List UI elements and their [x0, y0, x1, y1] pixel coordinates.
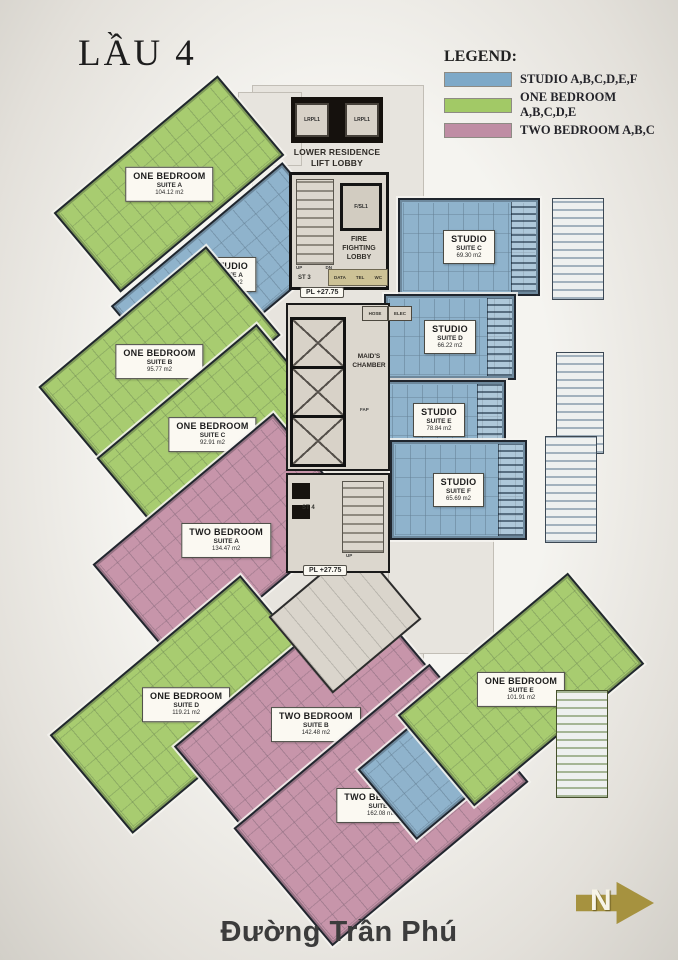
- lower-residence-lift-lobby-label: LOWER RESIDENCE LIFT LOBBY: [277, 147, 397, 169]
- elec-room: ELEC: [388, 306, 412, 321]
- studio-color-swatch: [444, 72, 512, 87]
- level-label-upper: PL +27.75: [300, 287, 344, 298]
- north-compass: N: [576, 872, 656, 932]
- residence-lift-bank: LRPL1 LRPL1: [291, 97, 383, 143]
- lift-lrpl1: LRPL1: [345, 103, 379, 137]
- unit-label: STUDIO SUITE F 65.69 m2: [433, 473, 485, 508]
- balcony-strip: [545, 436, 597, 543]
- unit-label: STUDIO SUITE E 78.84 m2: [413, 403, 465, 438]
- level-label-lower: PL +27.75: [303, 565, 347, 576]
- north-arrow-icon: [576, 880, 654, 926]
- stair-3-hatch: [296, 179, 334, 265]
- duct-box: [292, 483, 310, 499]
- unit-label: STUDIO SUITE C 69.30 m2: [443, 230, 495, 265]
- balcony-strip: [556, 690, 608, 798]
- hose-room: HOSE: [362, 306, 388, 321]
- balcony-hatch: [487, 298, 512, 376]
- page-title: LẦU 4: [78, 32, 197, 75]
- stair-4-hatch: [342, 481, 384, 553]
- unit-studio-suite-f: STUDIO SUITE F 65.69 m2: [390, 440, 527, 540]
- fap-label: FAP: [360, 407, 369, 412]
- data-room-label: DATA: [334, 275, 346, 280]
- legend-row-two-bedroom: TWO BEDROOM A,B,C: [444, 123, 674, 138]
- legend-label-one-bedroom: ONE BEDROOM A,B,C,D,E: [520, 90, 674, 120]
- balcony-hatch: [511, 202, 536, 292]
- wc-room-label: WC: [374, 275, 382, 280]
- legend: LEGEND: STUDIO A,B,C,D,E,F ONE BEDROOM A…: [444, 48, 674, 141]
- legend-row-one-bedroom: ONE BEDROOM A,B,C,D,E: [444, 90, 674, 120]
- legend-row-studio: STUDIO A,B,C,D,E,F: [444, 72, 674, 87]
- lift-shaft-block: MAID'S CHAMBER FAP: [286, 303, 390, 471]
- unit-label: ONE BEDROOM SUITE B 95.77 m2: [115, 344, 203, 379]
- legend-heading: LEGEND:: [444, 48, 674, 66]
- unit-label: ONE BEDROOM SUITE E 101.91 m2: [477, 672, 565, 707]
- lift-shaft-cell: [293, 320, 343, 366]
- lift-lrpl1: LRPL1: [295, 103, 329, 137]
- floor-plan-page: LẦU 4 LEGEND: STUDIO A,B,C,D,E,F ONE BED…: [0, 0, 678, 960]
- balcony-strip: [552, 198, 604, 300]
- up-label: UP: [346, 553, 352, 558]
- one-bedroom-color-swatch: [444, 98, 512, 113]
- lift-shafts: [290, 317, 346, 467]
- unit-label: ONE BEDROOM SUITE A 104.12 m2: [125, 167, 213, 202]
- unit-studio-suite-c: STUDIO SUITE C 69.30 m2: [398, 198, 540, 296]
- stair-direction-labels: UP DN: [296, 265, 332, 270]
- service-rooms-row: DATA TEL WC: [328, 269, 388, 286]
- north-letter: N: [590, 884, 612, 918]
- fire-lobby-block: UP DN ST 3 F/SL1 FIRE FIGHTING LOBBY DAT…: [289, 172, 389, 290]
- lift-shaft-cell: [293, 369, 343, 415]
- unit-label: STUDIO SUITE D 66.22 m2: [424, 320, 476, 355]
- two-bedroom-color-swatch: [444, 123, 512, 138]
- lift-shaft-cell: [293, 418, 343, 464]
- unit-label: TWO BEDROOM SUITE A 134.47 m2: [181, 523, 271, 558]
- fire-service-lift: F/SL1: [340, 183, 382, 231]
- legend-label-studio: STUDIO A,B,C,D,E,F: [520, 72, 637, 87]
- maids-chamber-label: MAID'S CHAMBER: [346, 353, 392, 371]
- balcony-hatch: [498, 444, 523, 536]
- tel-room-label: TEL: [356, 275, 365, 280]
- up-label: UP: [296, 265, 302, 270]
- service-backdrop: [388, 520, 494, 654]
- stair-4-label: ST 4: [302, 505, 315, 511]
- stair-3-label: ST 3: [298, 275, 311, 281]
- stair-4-block: ST 4 UP: [286, 473, 390, 573]
- fire-fighting-lobby-label: FIRE FIGHTING LOBBY: [330, 235, 388, 262]
- legend-label-two-bedroom: TWO BEDROOM A,B,C: [520, 123, 655, 138]
